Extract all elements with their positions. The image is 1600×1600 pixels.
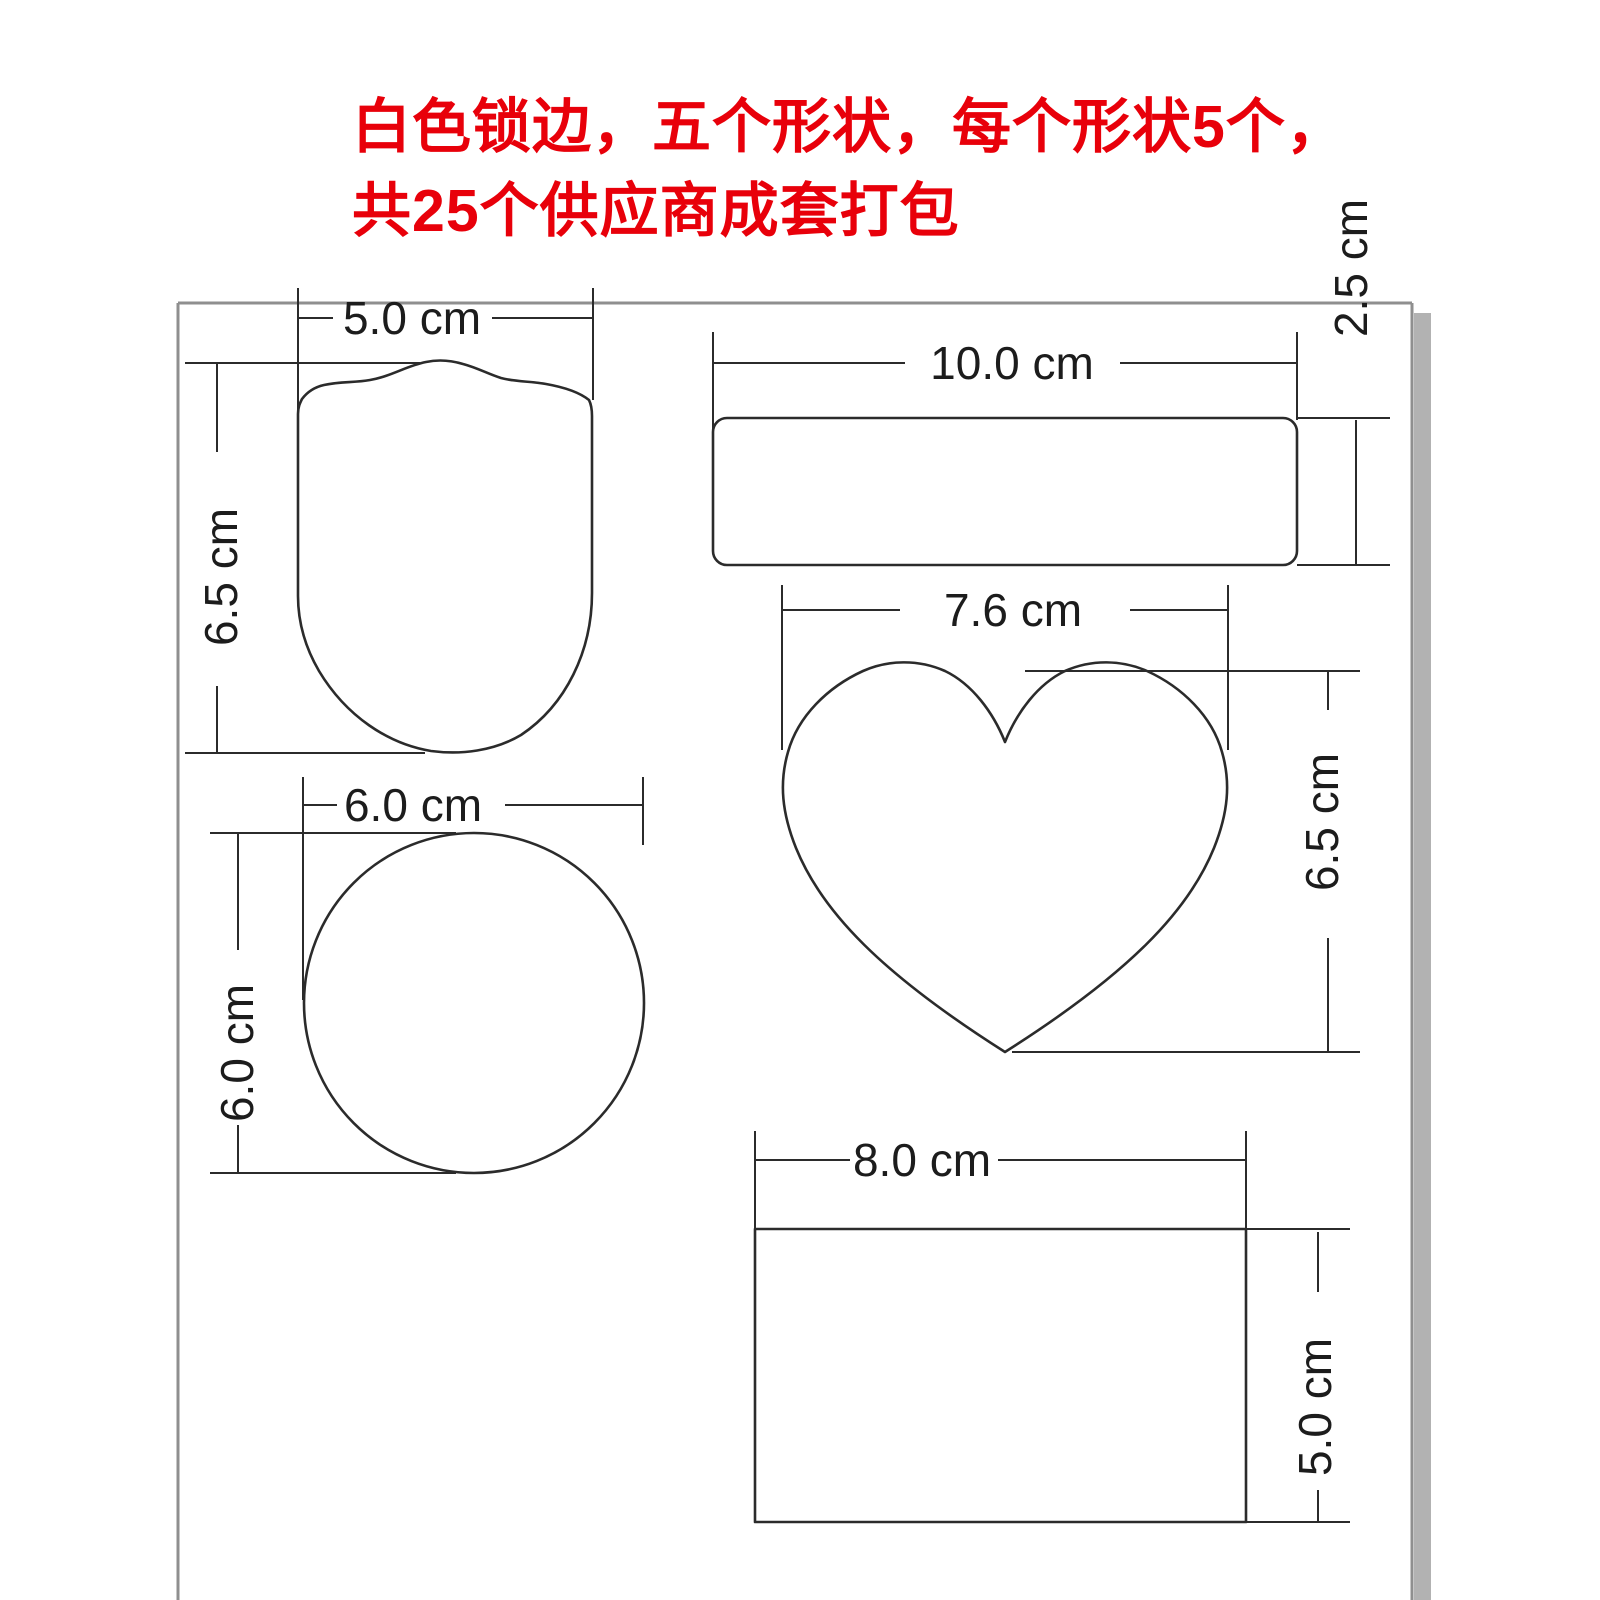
heart-outline	[783, 662, 1227, 1052]
circle-height-dimension: 6.0 cm	[210, 833, 456, 1173]
rounded-rect-height-dimension: 2.5 cm	[1297, 199, 1390, 565]
rounded-rect-height-label: 2.5 cm	[1325, 199, 1377, 337]
circle-height-label: 6.0 cm	[211, 984, 263, 1122]
rectangle-figure: 8.0 cm 5.0 cm	[755, 1131, 1350, 1522]
shield-width-dimension: 5.0 cm	[298, 288, 593, 443]
rectangle-height-label: 5.0 cm	[1289, 1338, 1341, 1476]
shield-height-label: 6.5 cm	[195, 508, 247, 646]
heart-height-dimension: 6.5 cm	[1012, 671, 1360, 1052]
circle-figure: 6.0 cm 6.0 cm	[210, 777, 644, 1173]
diagram-canvas: 白色锁边，五个形状，每个形状5个， 共25个供应商成套打包 5.0 cm 6.5…	[0, 0, 1600, 1600]
dimension-diagram: 白色锁边，五个形状，每个形状5个， 共25个供应商成套打包 5.0 cm 6.5…	[0, 0, 1600, 1600]
rounded-rect-outline	[713, 418, 1297, 565]
page-sheet	[178, 303, 1431, 1600]
rounded-rect-width-dimension: 10.0 cm	[713, 332, 1297, 452]
shield-figure: 5.0 cm 6.5 cm	[185, 288, 593, 753]
shield-height-dimension: 6.5 cm	[185, 363, 425, 753]
heart-height-label: 6.5 cm	[1296, 753, 1348, 891]
annotation: 白色锁边，五个形状，每个形状5个， 共25个供应商成套打包	[352, 94, 1346, 244]
shield-width-label: 5.0 cm	[343, 292, 481, 344]
rectangle-outline	[755, 1229, 1246, 1522]
rounded-rect-figure: 10.0 cm 2.5 cm	[713, 199, 1390, 565]
annotation-line-1: 白色锁边，五个形状，每个形状5个，	[352, 94, 1346, 160]
shield-outline	[298, 361, 592, 753]
circle-width-dimension: 6.0 cm	[303, 777, 643, 1000]
circle-width-label: 6.0 cm	[344, 779, 482, 831]
rectangle-height-dimension: 5.0 cm	[1246, 1229, 1350, 1522]
page-shadow	[1414, 313, 1431, 1600]
heart-width-dimension: 7.6 cm	[782, 584, 1228, 750]
circle-outline	[304, 833, 644, 1173]
rectangle-width-dimension: 8.0 cm	[755, 1131, 1246, 1229]
rounded-rect-width-label: 10.0 cm	[930, 337, 1094, 389]
heart-figure: 7.6 cm 6.5 cm	[782, 584, 1360, 1052]
annotation-line-2: 共25个供应商成套打包	[352, 178, 960, 244]
rectangle-width-label: 8.0 cm	[853, 1134, 991, 1186]
heart-width-label: 7.6 cm	[944, 584, 1082, 636]
